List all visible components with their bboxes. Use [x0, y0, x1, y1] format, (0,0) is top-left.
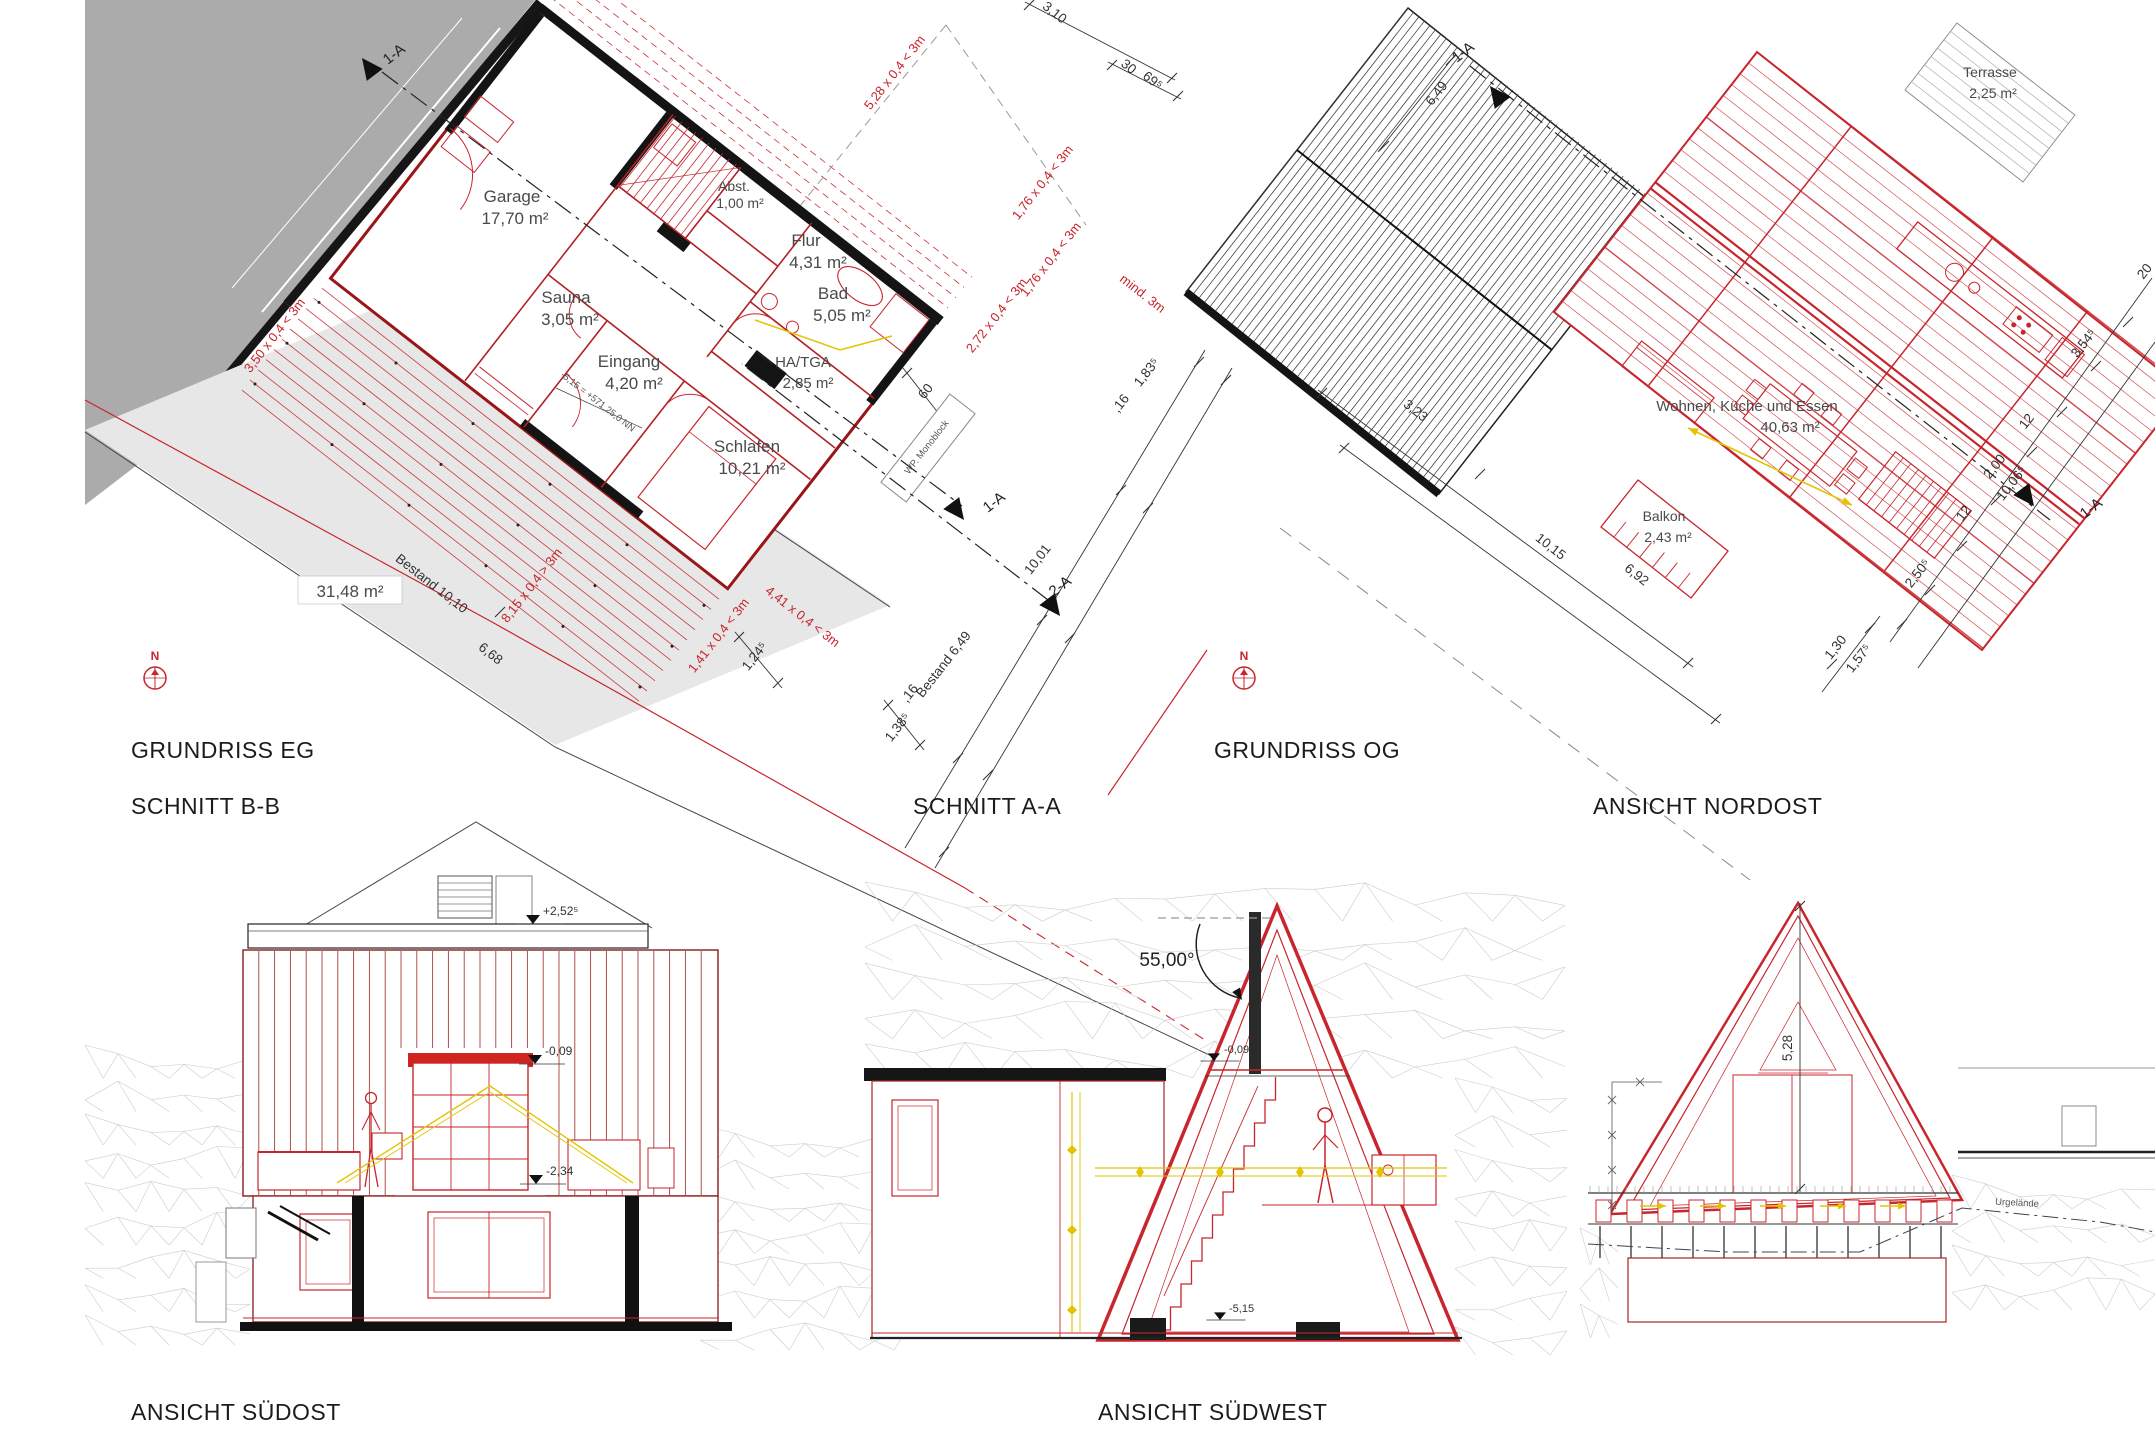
- eg-room-schlafen-area: 10,21 m²: [718, 459, 785, 478]
- og-room-terrasse-area: 2,25 m²: [1969, 85, 2017, 101]
- title-grundriss-eg: GRUNDRISS EG: [131, 737, 315, 763]
- ansicht-nordost-drawing: [1580, 901, 2155, 1338]
- eg-room-hatga-name: HA/TGA: [775, 354, 831, 371]
- bb-level-floor: -2,34: [546, 1164, 574, 1178]
- aa-level-bottom: -5,15: [1229, 1303, 1254, 1315]
- eg-room-bad-area: 5,05 m²: [813, 306, 871, 325]
- bb-level-top: +2,52⁵: [543, 904, 578, 918]
- og-dim-6-92: 6,92: [1622, 560, 1652, 588]
- title-schnitt-bb: SCHNITT B-B: [131, 793, 280, 819]
- eg-site-bestand-area: 31,48 m²: [316, 582, 383, 601]
- eg-reddim-1-76-a: 1,76 x 0,4 < 3m: [1009, 142, 1076, 222]
- og-north-label: N: [1240, 649, 1249, 663]
- title-grundriss-og: GRUNDRISS OG: [1214, 737, 1400, 763]
- north-compass-icon: [1233, 667, 1255, 689]
- eg-room-flur-area: 4,31 m²: [789, 253, 847, 272]
- og-dim-10-15: 10,15: [1533, 530, 1569, 563]
- eg-room-abst-area: 1,00 m²: [716, 195, 764, 211]
- eg-section-marker-1a-mid: 1-A: [980, 489, 1009, 517]
- og-room-wohnen-area: 40,63 m²: [1760, 419, 1819, 436]
- drawing-sheet-canvas: GRUNDRISS EG GRUNDRISS OG SCHNITT B-B SC…: [0, 0, 2155, 1440]
- north-compass-icon: [144, 667, 166, 689]
- eg-reddim-mind-3m: mind. 3m: [1117, 271, 1168, 316]
- schnitt-bb-drawing: [85, 822, 910, 1350]
- eg-dim-bestand-6-49: Bestand 6,49: [913, 628, 974, 700]
- eg-room-sauna-area: 3,05 m²: [541, 310, 599, 329]
- eg-room-hatga-area: 2,85 m²: [783, 375, 834, 392]
- og-dim-1-30: 1,30: [1821, 632, 1849, 662]
- eg-room-bad-name: Bad: [818, 284, 848, 303]
- eg-dim-60: 60: [915, 381, 936, 402]
- eg-dim-16-a: ,16: [1109, 391, 1132, 415]
- eg-section-marker-2a: 2-A: [1046, 573, 1075, 601]
- eg-dim-30: 30: [1118, 56, 1139, 77]
- eg-room-flur-name: Flur: [791, 231, 821, 250]
- architectural-plan-sheet: GRUNDRISS EG GRUNDRISS OG SCHNITT B-B SC…: [0, 0, 2155, 1440]
- eg-room-garage-area: 17,70 m²: [481, 209, 548, 228]
- eg-reddim-5-28: 5,28 x 0,4 < 3m: [861, 32, 928, 112]
- eg-room-abst-name: Abst.: [718, 178, 750, 194]
- no-terrain-label: Urgelände: [1995, 1197, 2039, 1210]
- eg-reddim-2-72: 2,72 x 0,4 < 3m: [963, 275, 1030, 355]
- title-ansicht-nordost: ANSICHT NORDOST: [1593, 793, 1822, 819]
- title-ansicht-suedwest: ANSICHT SÜDWEST: [1098, 1399, 1327, 1425]
- og-room-balkon-area: 2,43 m²: [1644, 529, 1692, 545]
- og-room-balkon-name: Balkon: [1643, 508, 1686, 524]
- bb-level-mid: -0,09: [545, 1044, 573, 1058]
- eg-north-label: N: [151, 649, 160, 663]
- aa-roof-angle: 55,00°: [1139, 950, 1194, 971]
- eg-room-garage-name: Garage: [484, 187, 541, 206]
- eg-room-schlafen-name: Schlafen: [714, 437, 780, 456]
- eg-room-sauna-name: Sauna: [541, 288, 591, 307]
- title-ansicht-suedost: ANSICHT SÜDOST: [131, 1399, 341, 1425]
- og-room-wohnen-name: Wohnen, Küche und Essen: [1656, 398, 1838, 415]
- eg-dim-1-83-5: 1,83⁵: [1131, 355, 1162, 389]
- eg-dim-10-01: 10,01: [1021, 541, 1054, 577]
- aa-level-mid: -0,09: [1224, 1044, 1249, 1056]
- schnitt-aa-drawing: [864, 882, 1567, 1355]
- eg-room-eingang-area: 4,20 m²: [605, 374, 663, 393]
- no-dim-height-5-28: 5,28: [1780, 1035, 1795, 1061]
- eg-room-eingang-name: Eingang: [598, 352, 660, 371]
- title-schnitt-aa: SCHNITT A-A: [913, 793, 1061, 819]
- eg-dim-1-38-5: 1,38⁵: [882, 710, 913, 744]
- og-room-terrasse-name: Terrasse: [1963, 64, 2017, 80]
